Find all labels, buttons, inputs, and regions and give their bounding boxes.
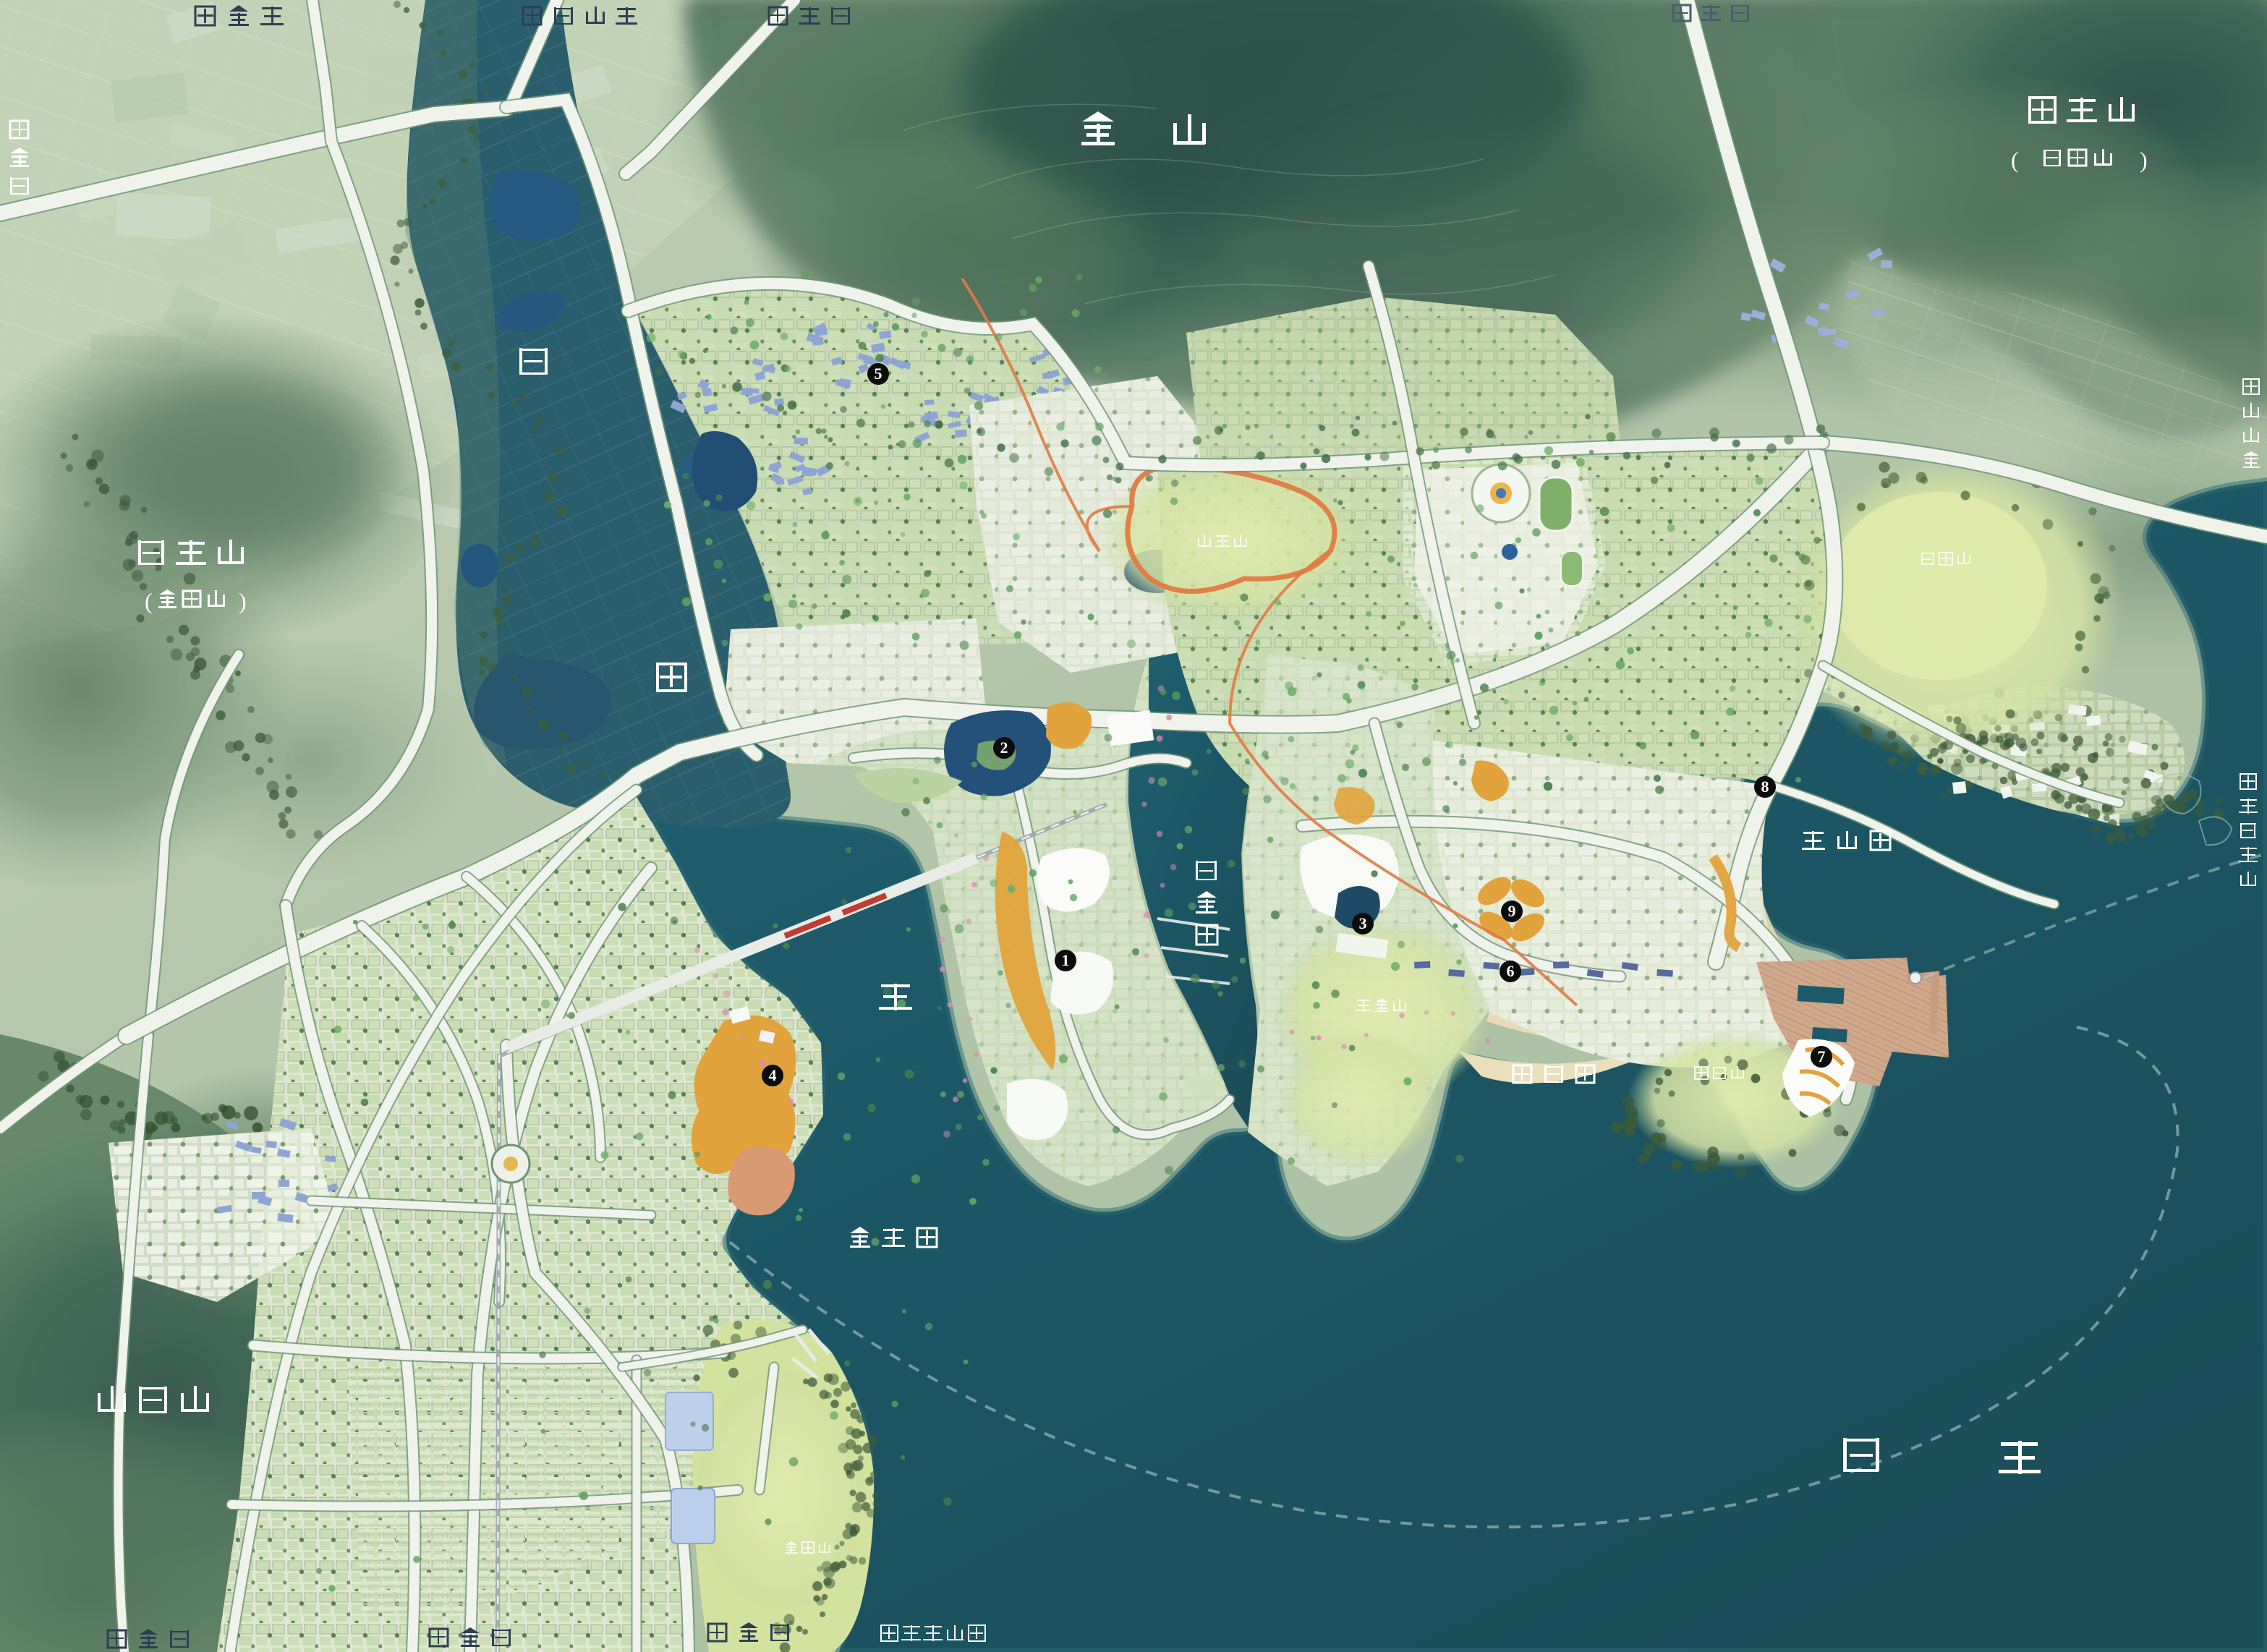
svg-text:5: 5	[875, 365, 882, 383]
svg-text:): )	[2140, 147, 2148, 173]
svg-text:(: (	[2011, 147, 2019, 173]
svg-text:(: (	[145, 588, 153, 614]
svg-text:8: 8	[1761, 778, 1769, 796]
svg-text:7: 7	[1818, 1047, 1826, 1065]
svg-text:6: 6	[1507, 962, 1515, 980]
svg-text:9: 9	[1508, 902, 1516, 920]
svg-text:2: 2	[1000, 738, 1008, 757]
svg-text:3: 3	[1359, 914, 1367, 932]
svg-text:): )	[239, 588, 247, 614]
svg-text:4: 4	[769, 1066, 777, 1084]
svg-text:1: 1	[1062, 951, 1070, 969]
